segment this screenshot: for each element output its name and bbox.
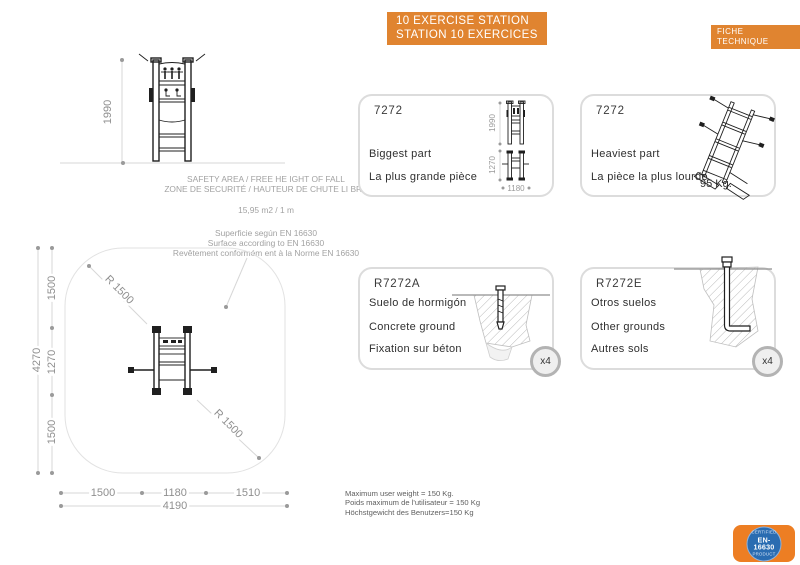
dim-label-part-height: 1990	[488, 114, 497, 132]
radius-dot	[257, 456, 261, 460]
dim-label-height: 1990	[102, 100, 114, 124]
dim-label-left-mid: 1270	[46, 350, 58, 374]
title-line-2: STATION 10 EXERCICES	[396, 28, 538, 42]
part-isometric-view	[679, 93, 780, 202]
quantity-badge: x4	[752, 346, 783, 377]
radius-dot	[87, 264, 91, 268]
card-biggest-part: 7272 Biggest part La plus grande pièce 1…	[358, 94, 554, 197]
quantity-value: x4	[540, 356, 551, 367]
exercise-station-plan	[128, 326, 217, 395]
dim-label-part-depth: 1270	[488, 156, 497, 174]
radius-label-top: R 1500	[102, 273, 136, 307]
dim-label-left-top: 1500	[46, 276, 58, 300]
leader-line	[226, 258, 247, 307]
weight-line-fr: Poids maximum de l'utilisateur = 150 Kg	[345, 498, 480, 507]
quantity-badge: x4	[530, 346, 561, 377]
safety-area-outline	[65, 248, 285, 473]
seal-line-certified: CERTIFIED	[752, 530, 777, 534]
dim-label-total-height: 4270	[31, 348, 43, 372]
dim-label-bottom-left: 1500	[91, 487, 115, 499]
card-heaviest-part: 7272 Heaviest part La pièce la plus lour…	[580, 94, 776, 197]
l-anchor-drawing	[674, 255, 772, 363]
safety-area-value: 15,95 m2 / 1 m	[148, 205, 384, 215]
dim-label-left-bottom: 1500	[46, 420, 58, 444]
dim-dot	[285, 491, 289, 495]
en16630-seal: CERTIFIED EN-16630 PRODUCT	[747, 526, 782, 561]
biggest-part-drawing: 1990 1270 1180	[456, 98, 551, 193]
dim-label-bottom-mid: 1180	[163, 487, 187, 499]
dim-dot	[50, 393, 54, 397]
page-title: 10 EXERCISE STATION STATION 10 EXERCICES	[387, 12, 547, 45]
dim-label-total-width: 4190	[163, 500, 187, 512]
dim-dot	[36, 246, 40, 250]
dim-dot	[36, 471, 40, 475]
card-ref: R7272A	[374, 278, 420, 290]
quantity-value: x4	[762, 356, 773, 367]
seal-line-product: PRODUCT	[752, 552, 775, 556]
card-line-en: Biggest part	[369, 148, 431, 160]
pictogram-figures	[161, 67, 183, 79]
dim-dot	[50, 246, 54, 250]
surface-norm-es: Superficie según EN 16630	[148, 228, 384, 238]
part-top-view	[502, 151, 529, 181]
max-user-weight-note: Maximum user weight = 150 Kg. Poids maxi…	[345, 489, 480, 517]
fiche-technique-page: 10 EXERCISE STATION STATION 10 EXERCICES…	[0, 0, 800, 565]
card-line-fr: Fixation sur béton	[369, 343, 462, 355]
dim-dot	[50, 471, 54, 475]
weight-line-en: Maximum user weight = 150 Kg.	[345, 489, 480, 498]
dim-label-bottom-right: 1510	[236, 487, 260, 499]
dim-dot	[140, 491, 144, 495]
dim-dot	[285, 504, 289, 508]
dim-dot	[120, 58, 124, 62]
dim-dot	[50, 326, 54, 330]
card-line-es: Otros suelos	[591, 297, 656, 309]
seal-line-norm: EN-16630	[748, 536, 781, 550]
card-line-en: Heaviest part	[591, 148, 660, 160]
card-line-en: Other grounds	[591, 321, 665, 333]
leader-dot	[224, 305, 228, 309]
elevation-drawing: 1990	[55, 48, 305, 173]
heaviest-part-drawing	[685, 96, 773, 191]
dim-dot	[121, 161, 125, 165]
title-line-1: 10 EXERCISE STATION	[396, 14, 538, 28]
exercise-station-front	[139, 54, 205, 161]
card-fixation-concrete: R7272A Suelo de hormigón Concrete ground…	[358, 267, 554, 370]
dim-dot	[204, 491, 208, 495]
certification-badge: CERTIFIED EN-16630 PRODUCT	[733, 525, 795, 562]
card-fixation-other: R7272E Otros suelos Other grounds Autres…	[580, 267, 776, 370]
card-line-fr: Autres sols	[591, 343, 649, 355]
part-front-view	[507, 101, 526, 144]
dim-dot	[59, 491, 63, 495]
radius-label-bottom: R 1500	[211, 407, 245, 441]
card-ref: R7272E	[596, 278, 642, 290]
card-line-en: Concrete ground	[369, 321, 455, 333]
dim-label-part-width: 1180	[507, 184, 525, 193]
plan-view-drawing: R 1500 R 1500 4270	[25, 240, 330, 520]
safety-line-en: SAFETY AREA / FREE HE IGHT OF FALL	[148, 174, 384, 184]
safety-line-fr: ZONE DE SECURITÉ / HAUTEUR DE CHUTE LI B…	[148, 184, 384, 194]
dim-dot	[59, 504, 63, 508]
weight-line-de: Höchstgewicht des Benutzers=150 Kg	[345, 508, 480, 517]
pictogram-seated-figures	[164, 88, 181, 96]
fiche-technique-label: FICHE TECHNIQUE	[711, 25, 800, 49]
card-ref: 7272	[596, 105, 625, 117]
card-ref: 7272	[374, 105, 403, 117]
